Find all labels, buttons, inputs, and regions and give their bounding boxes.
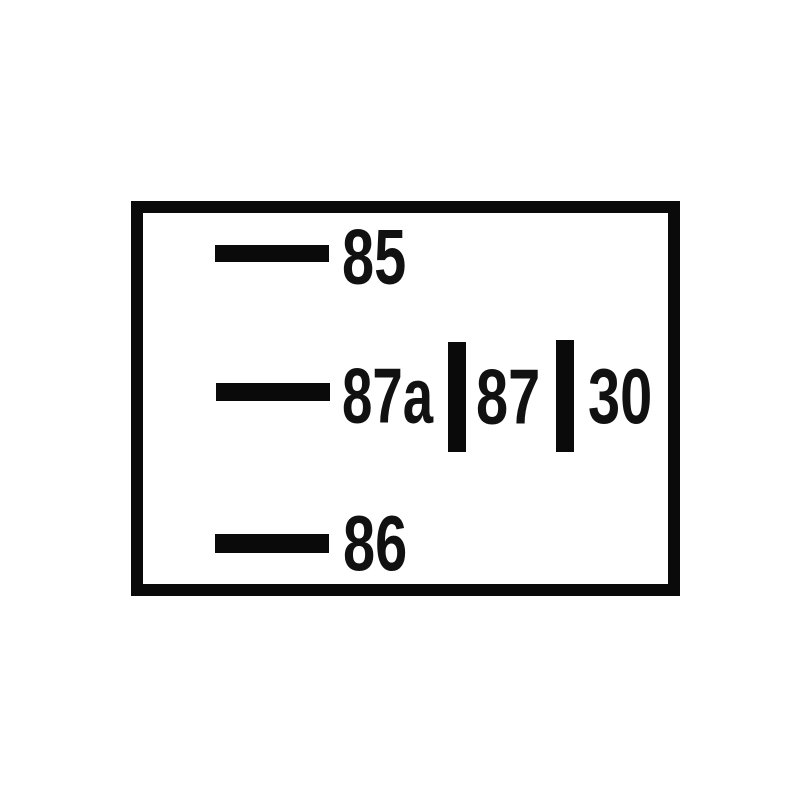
svg-text:30: 30 — [588, 353, 652, 441]
svg-text:85: 85 — [342, 213, 406, 301]
svg-text:86: 86 — [343, 500, 407, 588]
svg-text:87a: 87a — [342, 353, 434, 440]
svg-text:87: 87 — [476, 353, 540, 441]
